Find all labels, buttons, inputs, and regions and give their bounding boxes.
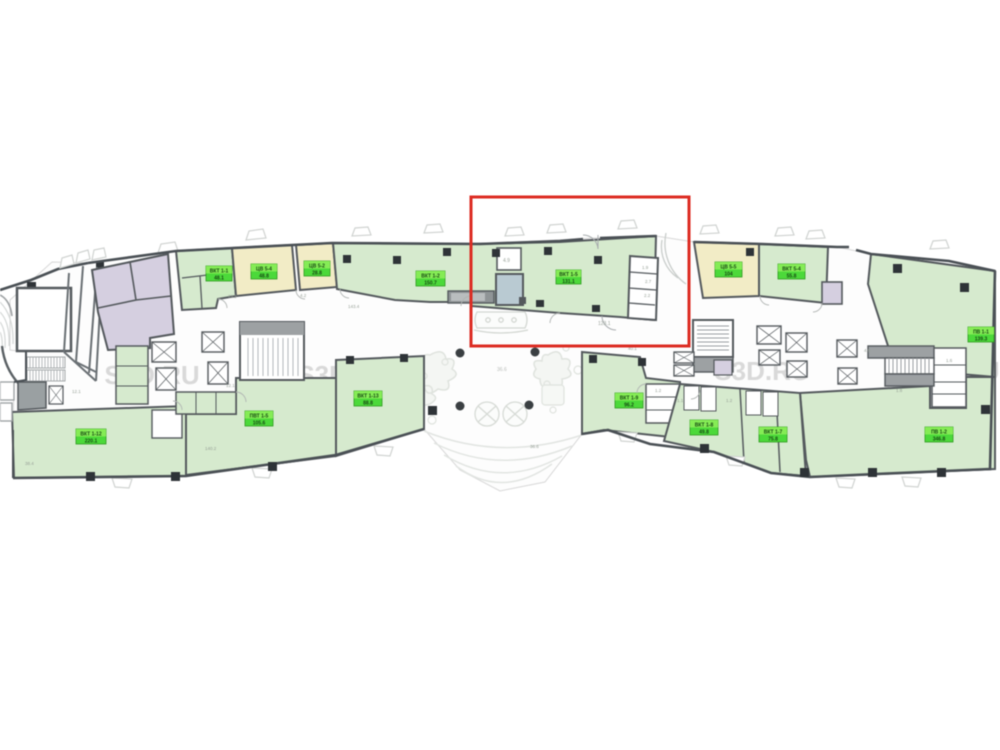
svg-text:346.8: 346.8 [933,437,946,443]
svg-text:104: 104 [724,272,733,278]
svg-text:96.2: 96.2 [624,403,634,409]
svg-text:48.1: 48.1 [214,276,224,282]
svg-text:131.1: 131.1 [562,279,575,285]
svg-text:75.8: 75.8 [768,437,778,443]
svg-text:1.2: 1.2 [655,388,662,393]
svg-text:1.1: 1.1 [677,398,684,403]
svg-text:36.6: 36.6 [497,367,507,373]
svg-text:ВКТ 1-13: ВКТ 1-13 [357,394,378,400]
svg-text:ВКТ 1-9: ВКТ 1-9 [620,396,639,402]
svg-text:ПВ 1-2: ПВ 1-2 [931,430,947,436]
svg-text:38.4: 38.4 [25,461,34,466]
svg-text:2.2: 2.2 [644,293,651,298]
svg-text:4.2: 4.2 [300,293,307,298]
svg-text:1.2: 1.2 [726,398,733,403]
svg-text:ЦВ 5-5: ЦВ 5-5 [721,265,737,271]
svg-text:ПВТ 1-5: ПВТ 1-5 [250,414,269,420]
svg-text:12.1: 12.1 [72,389,81,394]
svg-text:36.6: 36.6 [530,444,539,449]
svg-text:73.2: 73.2 [228,294,237,299]
svg-text:4.9: 4.9 [503,258,510,264]
svg-text:150.7: 150.7 [424,281,437,287]
svg-text:88.8: 88.8 [363,401,373,407]
svg-text:ВКТ 1-8: ВКТ 1-8 [695,423,714,429]
svg-text:2.7: 2.7 [645,279,652,284]
svg-text:ВКТ 1-5: ВКТ 1-5 [559,272,578,278]
svg-text:105.6: 105.6 [253,421,266,427]
svg-text:49.8: 49.8 [699,430,709,436]
svg-text:1.9: 1.9 [642,265,649,270]
svg-text:ВКТ 1-1: ВКТ 1-1 [210,269,229,275]
svg-text:ВКТ 5-4: ВКТ 5-4 [782,267,801,273]
svg-text:28.8: 28.8 [312,271,322,277]
svg-text:1.6: 1.6 [946,358,953,363]
svg-text:48.8: 48.8 [259,274,269,280]
svg-text:139.3: 139.3 [975,337,988,343]
svg-text:140.2: 140.2 [205,446,217,451]
svg-text:123.1: 123.1 [598,321,611,327]
svg-text:ВКТ 1-7: ВКТ 1-7 [764,430,783,436]
svg-text:ПВ 1-1: ПВ 1-1 [973,330,989,336]
svg-text:ЦВ 5-2: ЦВ 5-2 [309,264,325,270]
svg-text:ВКТ 1-12: ВКТ 1-12 [80,432,101,438]
svg-text:ЦВ 5-4: ЦВ 5-4 [256,267,272,273]
svg-text:220.1: 220.1 [85,439,98,445]
svg-text:12.1: 12.1 [226,383,235,388]
svg-text:1.8: 1.8 [896,388,903,393]
svg-text:55.8: 55.8 [787,274,797,280]
svg-text:143.4: 143.4 [348,304,360,309]
svg-text:ВКТ 1-2: ВКТ 1-2 [421,274,440,280]
svg-text:4.9: 4.9 [864,348,871,353]
